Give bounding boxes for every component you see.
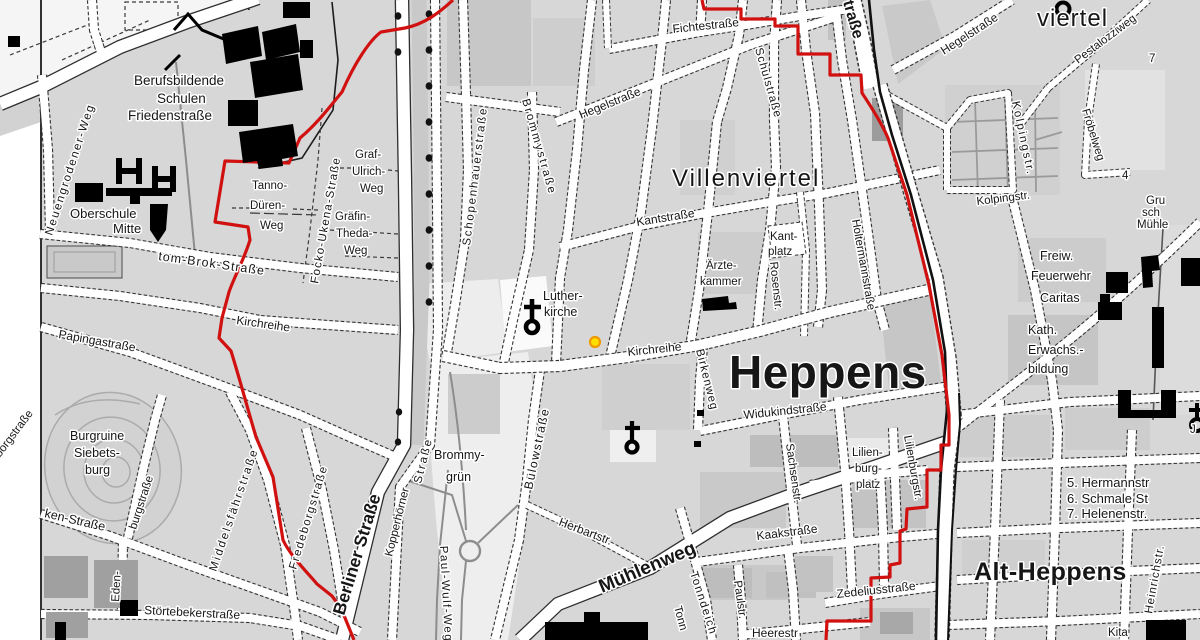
svg-text:Mühle: Mühle [1137, 219, 1168, 231]
svg-text:grün: grün [446, 470, 471, 484]
svg-text:Berufsbildende: Berufsbildende [134, 73, 224, 88]
svg-text:Feuerwehr: Feuerwehr [1031, 269, 1091, 283]
svg-text:Kita: Kita [1108, 627, 1128, 639]
svg-text:Eden-: Eden- [110, 571, 124, 602]
svg-text:kirche: kirche [544, 305, 577, 319]
svg-text:Heppens: Heppens [729, 346, 927, 398]
svg-text:Weg: Weg [360, 183, 383, 195]
svg-text:Siebets-: Siebets- [74, 446, 120, 460]
svg-text:7. Helenenstr.: 7. Helenenstr. [1067, 506, 1147, 521]
svg-text:4: 4 [1122, 170, 1129, 182]
svg-text:Freiw.: Freiw. [1040, 249, 1073, 263]
svg-text:Gräfin-: Gräfin- [335, 211, 370, 223]
svg-text:Tanno-: Tanno- [252, 180, 287, 192]
svg-text:Düren-: Düren- [250, 200, 285, 212]
svg-text:Graf-: Graf- [355, 149, 381, 161]
svg-text:kammer: kammer [700, 276, 742, 288]
svg-text:burg: burg [85, 463, 110, 477]
svg-text:Weg: Weg [260, 220, 283, 232]
svg-text:Mitte: Mitte [113, 221, 141, 236]
svg-text:Kant-: Kant- [770, 231, 798, 243]
svg-text:Ulrich-: Ulrich- [352, 166, 385, 178]
svg-text:5. Hermannstr: 5. Hermannstr [1067, 475, 1150, 490]
svg-text:Luther-: Luther- [543, 289, 583, 303]
svg-text:Alt-Heppens: Alt-Heppens [974, 558, 1127, 586]
svg-text:Heerestr: Heerestr [752, 626, 798, 640]
svg-text:Erwachs.-: Erwachs.- [1028, 343, 1084, 357]
svg-text:J: J [1190, 424, 1196, 436]
svg-text:Villenviertel: Villenviertel [672, 165, 820, 192]
svg-text:Burgruine: Burgruine [70, 429, 124, 443]
svg-text:burg-: burg- [855, 463, 882, 475]
svg-text:bildung: bildung [1028, 362, 1068, 376]
svg-text:Theda-: Theda- [336, 228, 373, 240]
svg-text:viertel: viertel [1037, 5, 1108, 32]
svg-text:Schulen: Schulen [157, 91, 206, 106]
svg-text:Kath.: Kath. [1028, 323, 1057, 337]
svg-text:Ärzte-: Ärzte- [706, 260, 737, 272]
svg-text:7: 7 [1149, 53, 1155, 65]
svg-text:Friedenstraße: Friedenstraße [128, 108, 212, 123]
svg-text:6. Schmale St: 6. Schmale St [1067, 491, 1148, 506]
svg-text:Oberschule: Oberschule [70, 206, 136, 221]
svg-text:Caritas: Caritas [1040, 291, 1080, 305]
svg-text:Weg: Weg [344, 245, 367, 257]
svg-text:Brommy-: Brommy- [434, 448, 485, 462]
svg-text:sch: sch [1142, 207, 1160, 219]
svg-text:Lilien-: Lilien- [852, 447, 883, 459]
svg-text:platz: platz [768, 246, 793, 258]
svg-text:Gru: Gru [1146, 195, 1165, 207]
svg-text:platz: platz [856, 479, 881, 491]
